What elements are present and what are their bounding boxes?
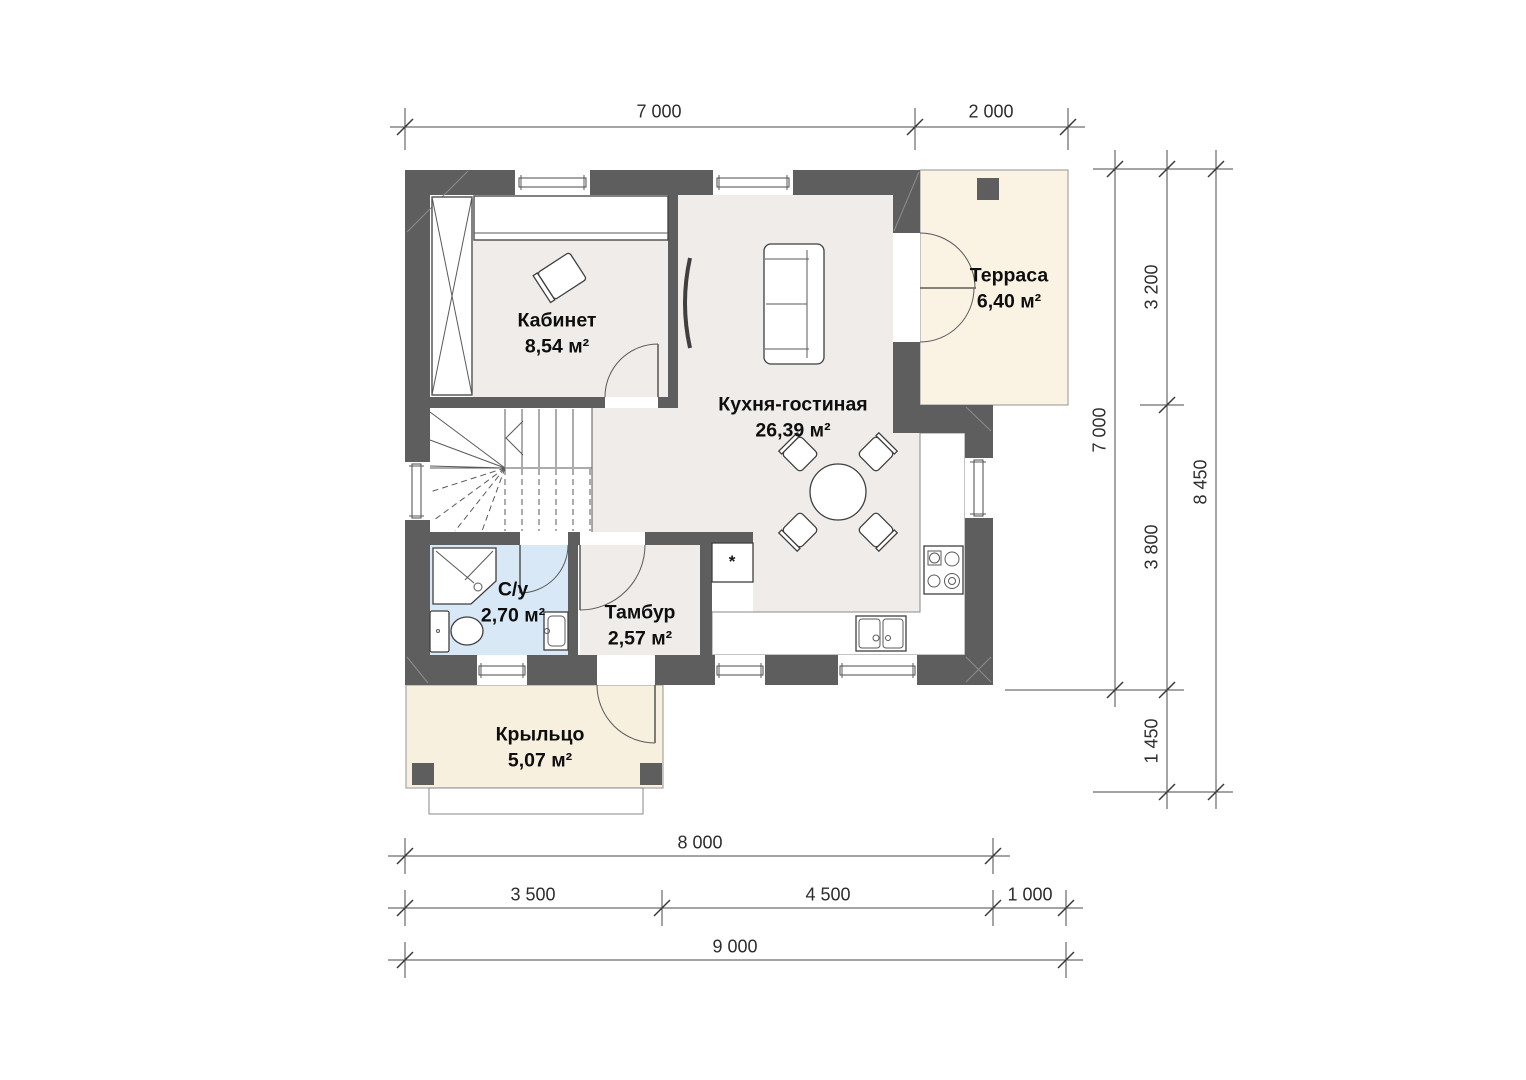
room-area: 8,54 м² <box>518 334 597 360</box>
room-area: 5,07 м² <box>496 748 585 774</box>
dim-right-1450: 1 450 <box>1142 718 1163 763</box>
floor-plan-drawing <box>0 0 1526 1080</box>
dim-right-3800: 3 800 <box>1142 524 1163 569</box>
room-area: 6,40 м² <box>970 289 1048 315</box>
stairs-direction-arrow <box>506 421 523 455</box>
dim-right-3200: 3 200 <box>1142 264 1163 309</box>
dim-bottom-1000: 1 000 <box>1007 885 1052 906</box>
dim-right-7000: 7 000 <box>1090 407 1111 452</box>
dim-bottom-4500: 4 500 <box>805 885 850 906</box>
room-name: Терраса <box>970 263 1048 289</box>
window-bathroom <box>479 666 525 675</box>
porch-steps <box>429 788 643 814</box>
window-hall <box>717 666 763 675</box>
room-label-terrace: Терраса 6,40 м² <box>970 263 1048 314</box>
room-name: Тамбур <box>605 600 676 626</box>
terrace-column <box>977 178 999 200</box>
porch-column-left <box>412 763 434 785</box>
room-name: Кухня-гостиная <box>718 392 867 418</box>
sofa <box>764 244 824 364</box>
dim-right-8450: 8 450 <box>1191 459 1212 504</box>
room-area: 2,70 м² <box>481 603 545 629</box>
room-label-tambour: Тамбур 2,57 м² <box>605 600 676 651</box>
fridge-symbol: * <box>729 552 736 572</box>
room-name: С/у <box>481 577 545 603</box>
window-kitchen <box>974 460 983 516</box>
room-area: 26,39 м² <box>718 418 867 444</box>
room-name: Крыльцо <box>496 722 585 748</box>
room-label-kitchen-living: Кухня-гостиная 26,39 м² <box>718 392 867 443</box>
dim-bottom-9000: 9 000 <box>712 937 757 958</box>
window-stairs <box>412 464 421 518</box>
porch-column-right <box>640 763 662 785</box>
room-label-porch: Крыльцо 5,07 м² <box>496 722 585 773</box>
stove <box>924 546 963 594</box>
room-name: Кабинет <box>518 308 597 334</box>
room-label-bathroom: С/у 2,70 м² <box>481 577 545 628</box>
dim-top-7000: 7 000 <box>636 102 681 123</box>
room-label-kabinet: Кабинет 8,54 м² <box>518 308 597 359</box>
window-sink <box>840 666 915 675</box>
kitchen-sink <box>856 616 906 651</box>
staircase <box>430 408 592 532</box>
floor-plan-canvas: Кабинет 8,54 м² Кухня-гостиная 26,39 м² … <box>0 0 1526 1080</box>
dining-table <box>810 464 866 520</box>
dim-bottom-3500: 3 500 <box>510 885 555 906</box>
bathroom-sink <box>544 612 568 650</box>
room-area: 2,57 м² <box>605 626 676 652</box>
dim-top-2000: 2 000 <box>968 102 1013 123</box>
dim-bottom-8000: 8 000 <box>677 833 722 854</box>
window-office <box>519 178 586 187</box>
window-living-top <box>717 178 789 187</box>
